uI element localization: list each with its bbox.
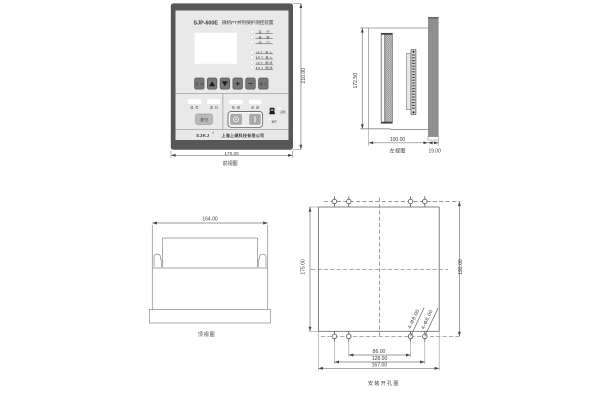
svg-text:就地: 就地 [280,110,286,114]
svg-text:SJP-600E: SJP-600E [194,20,219,26]
svg-text:100.00: 100.00 [390,137,406,143]
svg-text:取消: 取消 [196,81,203,86]
svg-text:SJKJ: SJKJ [196,133,209,139]
svg-text:合 闸: 合 闸 [251,105,259,110]
svg-text:128.00: 128.00 [372,356,388,362]
svg-text:左视图: 左视图 [390,147,406,154]
svg-text:拉 闸: 拉 闸 [232,105,240,110]
svg-text:顶视图: 顶视图 [198,331,215,338]
svg-text:安装开孔图: 安装开孔图 [368,380,399,387]
svg-text:86.00: 86.00 [373,349,386,355]
svg-text:微机PT并列保护测控装置: 微机PT并列保护测控装置 [222,19,274,26]
svg-text:4-Φ8.00: 4-Φ8.00 [407,309,421,330]
svg-text:170.00: 170.00 [224,151,239,156]
svg-text:确认: 确认 [260,81,267,86]
svg-text:192.00: 192.00 [458,259,464,275]
svg-text:上海上继科技有限公司: 上海上继科技有限公司 [222,132,265,138]
svg-text:复归: 复归 [200,117,208,122]
svg-text:19.00: 19.00 [428,148,441,154]
svg-text:164.00: 164.00 [202,216,218,222]
svg-text:前视图: 前视图 [223,160,238,167]
svg-text:210.00: 210.00 [301,68,307,84]
svg-text:172.50: 172.50 [353,73,359,89]
svg-text:远方: 远方 [272,120,278,124]
svg-text:167.00: 167.00 [372,363,388,369]
svg-text:175.00: 175.00 [301,259,307,275]
svg-text:信 号: 信 号 [190,105,198,110]
svg-text:复 归: 复 归 [210,105,218,110]
